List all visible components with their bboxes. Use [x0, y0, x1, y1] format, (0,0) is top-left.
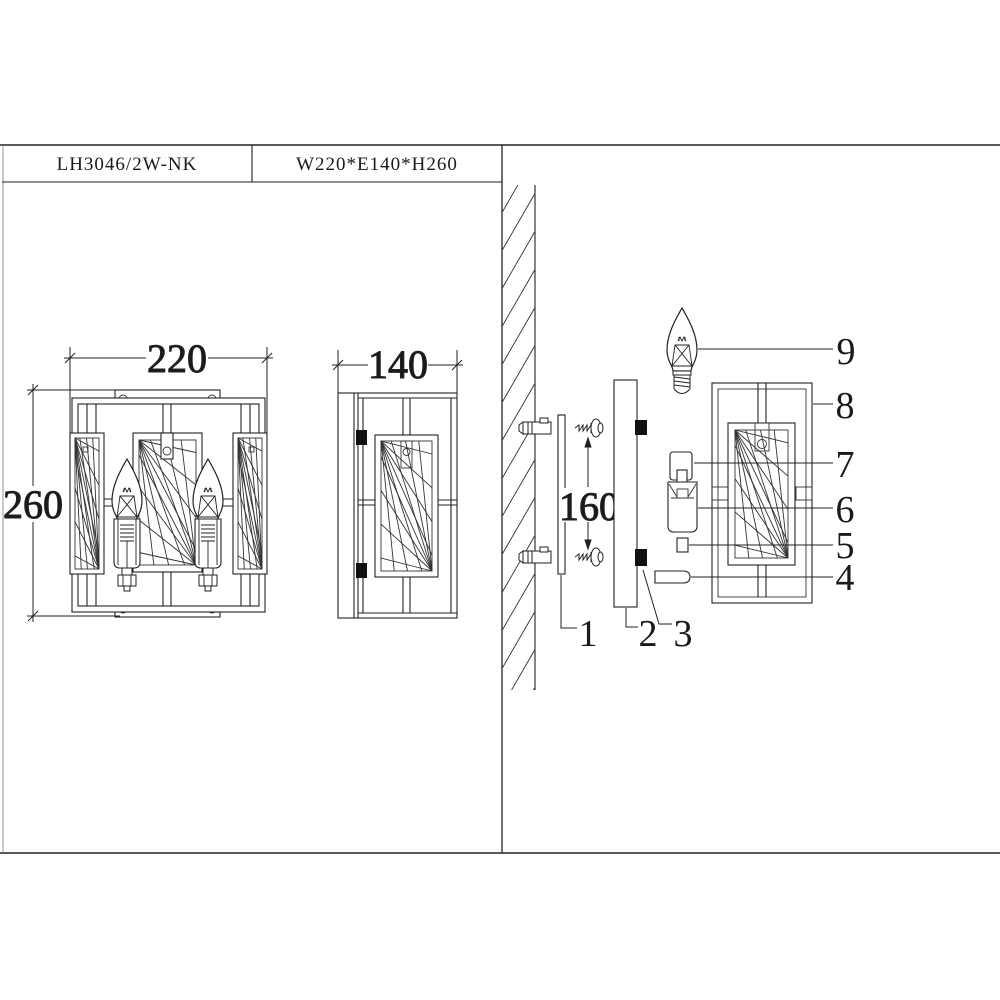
plate-clip-bottom [635, 549, 647, 566]
wall-section [500, 152, 537, 748]
mounting-screw-top [575, 419, 603, 437]
crystal-panel-right [233, 433, 267, 574]
lamp-socket [670, 452, 692, 485]
dim-160-label: 160 [559, 484, 619, 529]
dim-260-label: 260 [3, 482, 63, 527]
model-number: LH3046/2W-NK [57, 154, 198, 175]
technical-drawing: LH3046/2W-NK W220*E140*H260 [0, 0, 1000, 1000]
part-label-8: 8 [836, 385, 855, 427]
part-label-9: 9 [837, 331, 856, 373]
candle-bulb-exploded [667, 308, 697, 394]
size-spec: W220*E140*H260 [296, 154, 458, 175]
crystal-panel-center [133, 433, 202, 572]
dim-220-label: 220 [147, 336, 207, 381]
wall-plate [614, 380, 637, 607]
installation-drawing-sheet: LH3046/2W-NK W220*E140*H260 [0, 0, 1000, 1000]
threaded-tube [655, 571, 690, 583]
mounting-screw-bottom [575, 548, 603, 566]
socket-cover [668, 482, 697, 532]
part-label-5: 5 [836, 525, 855, 567]
part-label-7: 7 [836, 444, 855, 486]
spring-clip-top [356, 430, 367, 445]
part-label-2: 2 [639, 613, 658, 655]
spring-clip-bottom [356, 563, 367, 578]
side-view: 140 [332, 342, 463, 618]
part-label-1: 1 [579, 613, 598, 655]
part-label-3: 3 [674, 613, 693, 655]
part-label-6: 6 [836, 489, 855, 531]
dim-140-label: 140 [368, 342, 428, 387]
plate-clip-top [635, 420, 647, 435]
connector-block [677, 538, 688, 552]
exploded-view: 160 [500, 152, 856, 748]
lamp-body-rear [712, 383, 812, 603]
dimension-depth: 140 [332, 342, 463, 395]
dimension-screw-spacing: 160 [559, 438, 619, 549]
crystal-panel-side [375, 435, 438, 577]
crystal-panel-left [70, 433, 104, 574]
front-view: 220 260 [3, 336, 273, 622]
